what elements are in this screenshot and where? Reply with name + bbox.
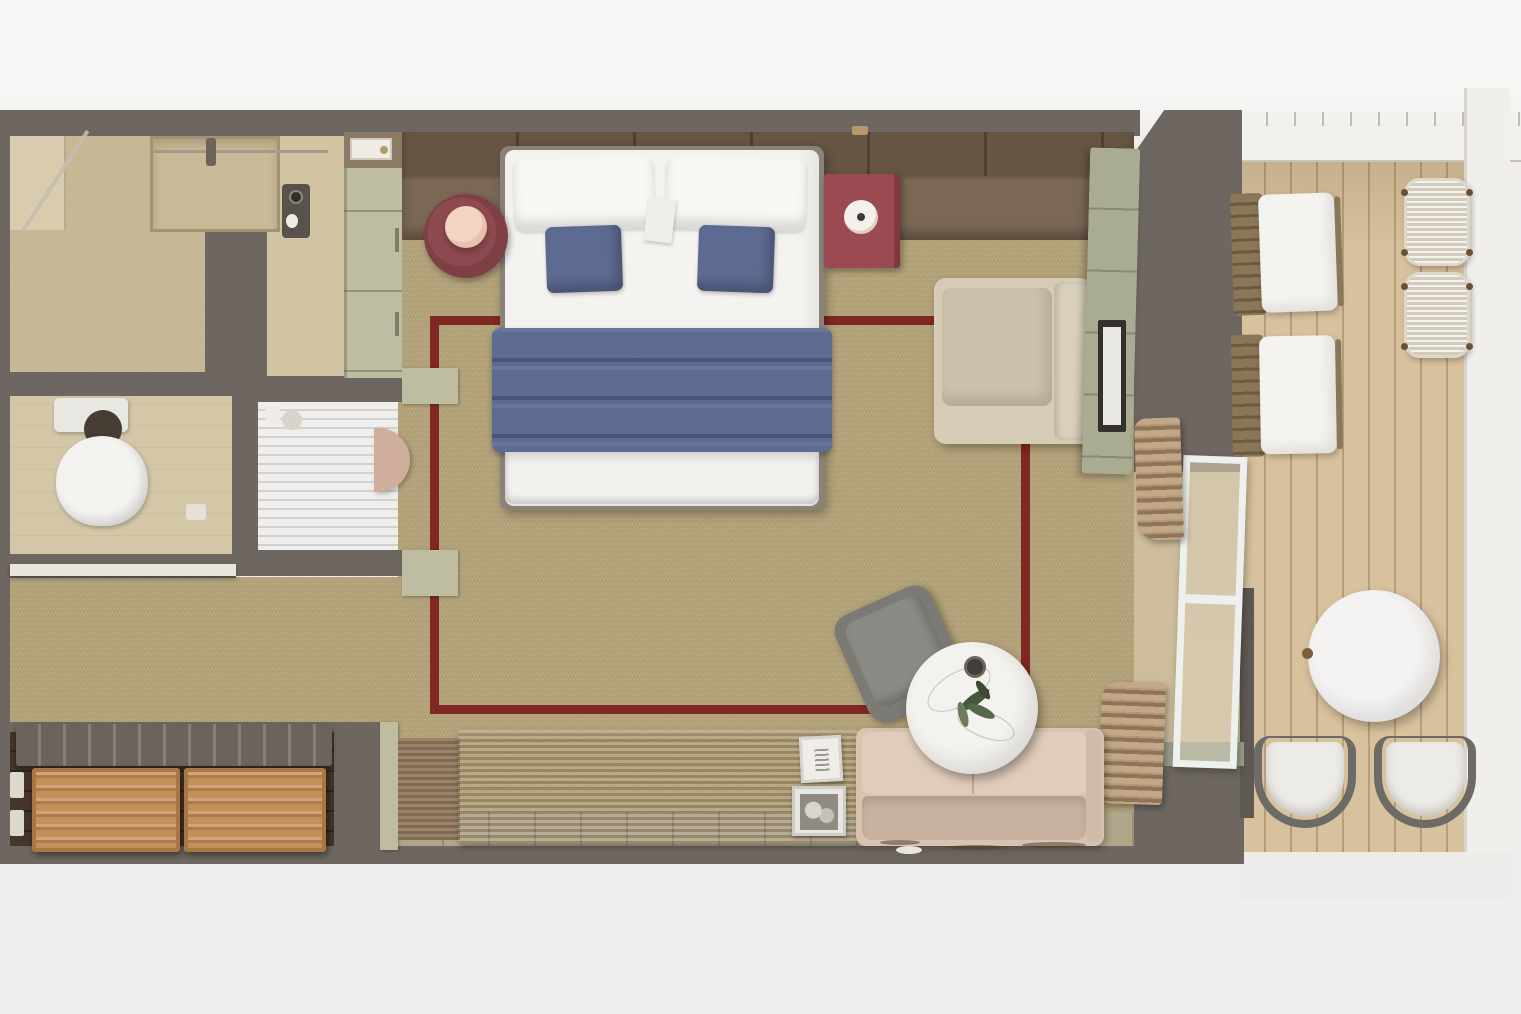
bed-runner-decor [643, 196, 676, 243]
balcony-chair [1254, 736, 1356, 828]
pillow [665, 156, 807, 232]
sun-lounger [1230, 188, 1344, 320]
decor-dish-icon [1022, 842, 1086, 848]
console-step [398, 738, 460, 840]
chair-frame [1374, 736, 1476, 828]
frame-photo [800, 794, 838, 830]
chair-frame [1254, 736, 1356, 828]
bathroom-counter [8, 134, 66, 230]
shower-knob-icon [289, 190, 303, 204]
pillow [513, 156, 655, 232]
wicker-side-table [1404, 178, 1470, 266]
frame-art [814, 749, 829, 772]
bathroom-divider-wall [0, 372, 266, 396]
shower-controls [282, 184, 310, 238]
wicker-side-table [1404, 272, 1470, 358]
left-wall [0, 110, 10, 858]
wardrobe-return-panel [402, 550, 458, 596]
armchair-cushion [942, 288, 1052, 406]
square-nightstand [824, 174, 900, 268]
door-post [1240, 588, 1254, 818]
decor-dish-icon [948, 845, 1006, 850]
sofa-backrest [862, 796, 1086, 840]
lounger-cushion [1258, 192, 1338, 313]
luggage-bench [16, 724, 332, 766]
coffee-table [906, 642, 1038, 774]
balcony-walkway [1240, 852, 1510, 900]
king-bed [500, 146, 824, 510]
tray-icon [350, 138, 392, 160]
blue-throw-blanket [492, 328, 832, 452]
door-hinge-icon [10, 772, 24, 798]
soap-dish-icon [286, 214, 298, 228]
shower-rail [150, 150, 328, 153]
shower-head-icon [206, 138, 216, 166]
toilet-paper-icon [186, 504, 206, 520]
table-knob-icon [1302, 648, 1313, 659]
closet-drawer [32, 768, 180, 852]
entry-door [10, 564, 236, 576]
floorplan-render [0, 0, 1521, 1014]
picture-frame [792, 786, 846, 836]
lounge-armchair [934, 278, 1092, 444]
balcony-chair [1374, 736, 1476, 828]
tv-icon [1098, 320, 1126, 432]
sun-lounger [1231, 331, 1343, 461]
lounger-cushion [1259, 335, 1337, 454]
vanity-wall-left [232, 376, 258, 558]
balcony-table [1308, 590, 1440, 722]
tv-screen [1103, 327, 1121, 425]
curtain [1098, 681, 1166, 805]
picture-frame [799, 735, 843, 783]
cabinet-handle-icon [395, 228, 399, 252]
cabinet-handle-icon [395, 312, 399, 336]
vanity-cup-icon [264, 406, 281, 423]
sofa-armrest [1086, 730, 1102, 842]
door-rail [1185, 594, 1235, 605]
folded-sheet [505, 452, 819, 504]
wall-sconce-icon [852, 126, 868, 135]
round-nightstand [424, 194, 508, 278]
table-lamp-icon [844, 200, 878, 234]
bowl-icon [964, 656, 986, 678]
entry-hallway [8, 577, 404, 725]
tray-knob-icon [380, 146, 388, 154]
blue-accent-pillow [545, 225, 623, 294]
vanity-cup-icon [282, 410, 302, 430]
table-lamp-icon [445, 206, 487, 248]
blue-accent-pillow [697, 225, 775, 294]
decor-dish-icon [880, 840, 920, 845]
vanity-wall-bottom [232, 550, 402, 576]
toilet-bowl [56, 436, 148, 526]
wardrobe-return-panel [402, 368, 458, 404]
wardrobe-cabinet [344, 132, 402, 378]
closet-drawer [184, 768, 326, 852]
curtain [1134, 417, 1184, 541]
closet-end-panel [380, 722, 398, 850]
decor-dish-icon [896, 846, 922, 854]
door-hinge-icon [10, 810, 24, 836]
sliding-glass-door [1173, 455, 1248, 769]
